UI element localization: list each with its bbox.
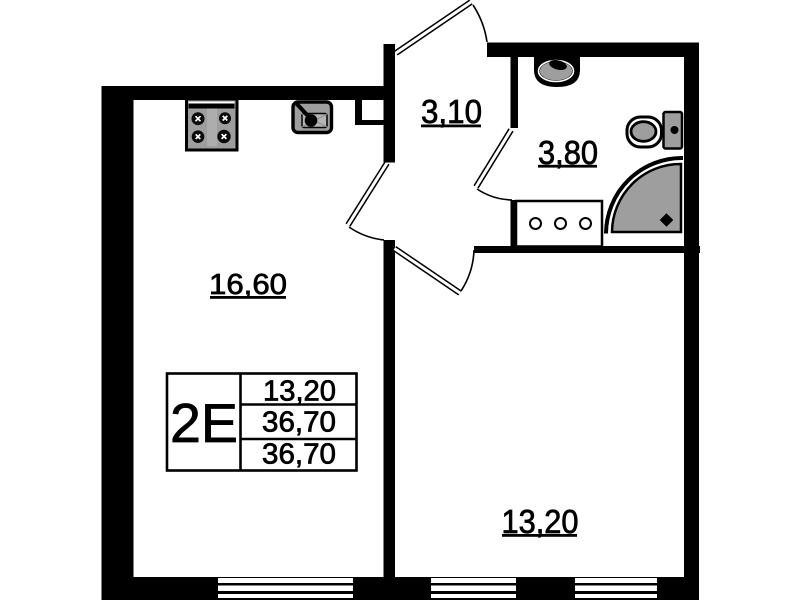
svg-text:13,20: 13,20	[263, 376, 336, 408]
svg-text:36,70: 36,70	[262, 407, 336, 439]
svg-text:36,70: 36,70	[262, 439, 336, 471]
svg-text:3,10: 3,10	[421, 93, 482, 130]
svg-text:2E: 2E	[170, 392, 238, 454]
